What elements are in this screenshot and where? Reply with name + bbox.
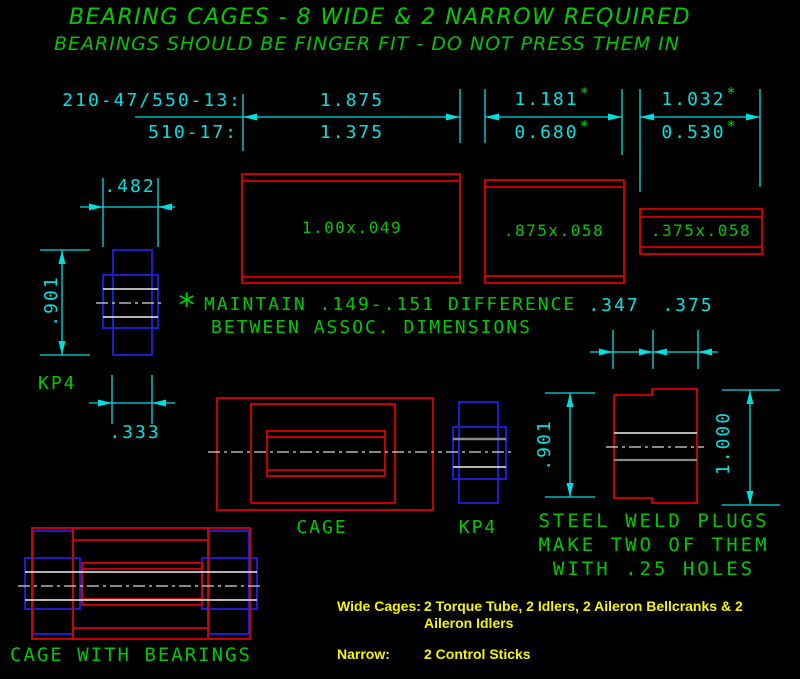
tube-small-label: .375x.058: [631, 222, 771, 240]
plug-caption-2: MAKE TWO OF THEM: [532, 535, 776, 557]
dim-row-label-top: 210-47/550-13:: [30, 91, 242, 112]
dim-col1-bottom: 1.375: [292, 123, 412, 144]
plug-height-right-dim: 1.000: [714, 403, 736, 483]
legend-narrow-label: Narrow:: [337, 646, 390, 662]
legend-wide-line2: Aileron Idlers: [424, 615, 513, 631]
kp4-left-label: KP4: [38, 374, 77, 395]
dim-col3-top: 1.032*: [640, 90, 756, 111]
dim-col2-top: 1.181*: [493, 90, 609, 111]
dim-col2-top-value: 1.181: [514, 89, 578, 110]
plug-dim-347: .347: [574, 296, 654, 317]
plug-caption-1: STEEL WELD PLUGS: [532, 511, 776, 533]
tube-medium-label: .875x.058: [484, 222, 624, 240]
drawing-subtitle: BEARINGS SHOULD BE FINGER FIT - DO NOT P…: [0, 34, 734, 56]
assembly-part: [18, 528, 262, 639]
plug-height-left-dim: .901: [535, 405, 557, 485]
tube-large-label: 1.00x.049: [282, 219, 422, 237]
legend-wide-line1: 2 Torque Tube, 2 Idlers, 2 Aileron Bellc…: [424, 598, 743, 614]
note-line2: BETWEEN ASSOC. DIMENSIONS: [211, 318, 532, 339]
asterisk-marker: *: [580, 117, 589, 135]
kp4-left-bore-dim: .333: [95, 423, 175, 444]
plug-dimension-lines: [545, 330, 780, 505]
plug-caption-3: WITH .25 HOLES: [532, 559, 776, 581]
asterisk-marker: *: [580, 84, 589, 102]
cad-drawing-canvas: BEARING CAGES - 8 WIDE & 2 NARROW REQUIR…: [0, 0, 800, 679]
dim-col2-bottom-value: 0.680: [514, 122, 578, 143]
plug-dim-375: .375: [648, 296, 728, 317]
weld-plug-part: [606, 389, 704, 503]
asterisk-marker: *: [727, 84, 736, 102]
dim-col3-bottom: 0.530*: [640, 123, 756, 144]
assembly-label: CAGE WITH BEARINGS: [10, 645, 252, 667]
kp4-left-part: [96, 250, 165, 355]
dim-col1-top: 1.875: [292, 91, 412, 112]
dim-col3-top-value: 1.032: [661, 89, 725, 110]
kp4-left-height-dim: .901: [42, 261, 64, 341]
note-line1: MAINTAIN .149-.151 DIFFERENCE: [204, 295, 576, 316]
kp4-left-width-dim: .482: [90, 177, 170, 198]
legend-narrow-value: 2 Control Sticks: [424, 646, 531, 662]
dim-col2-bottom: 0.680*: [493, 123, 609, 144]
cage-label: CAGE: [262, 518, 382, 539]
legend-wide-label: Wide Cages:: [337, 598, 421, 614]
asterisk-marker: *: [727, 117, 736, 135]
note-asterisk: *: [177, 289, 196, 321]
cage-part: [217, 398, 433, 510]
dim-col3-bottom-value: 0.530: [661, 122, 725, 143]
kp4-mid-part: [446, 402, 512, 503]
drawing-title: BEARING CAGES - 8 WIDE & 2 NARROW REQUIR…: [20, 5, 740, 30]
dim-row-label-bottom: 510-17:: [30, 123, 238, 144]
kp4-mid-label: KP4: [438, 518, 518, 539]
